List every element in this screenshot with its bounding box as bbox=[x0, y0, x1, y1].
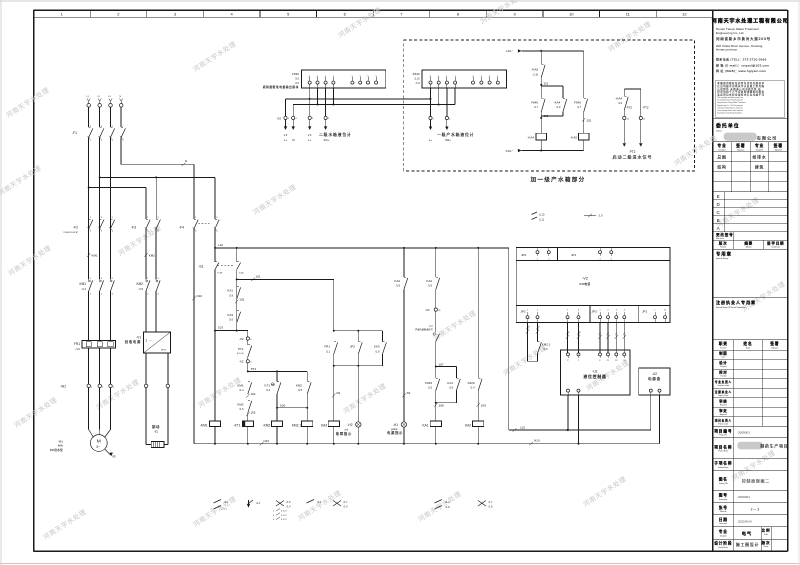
svg-text:M: M bbox=[97, 438, 101, 444]
svg-text:故障指示: 故障指示 bbox=[336, 431, 352, 436]
svg-text:KA2: KA2 bbox=[426, 279, 432, 283]
svg-text:审定: 审定 bbox=[719, 408, 727, 413]
svg-text:E: E bbox=[717, 194, 720, 199]
svg-text:/1.7: /1.7 bbox=[577, 106, 582, 109]
svg-text:/1.4: /1.4 bbox=[256, 502, 261, 505]
svg-text:F640: F640 bbox=[574, 100, 581, 104]
svg-text:Revised: Revised bbox=[720, 247, 726, 249]
svg-text:-U2: -U2 bbox=[652, 372, 657, 376]
svg-text:JP3: JP3 bbox=[592, 309, 598, 313]
svg-text:/1.1: /1.1 bbox=[326, 350, 331, 353]
svg-text:-F3: -F3 bbox=[131, 225, 136, 229]
svg-text:/1.9: /1.9 bbox=[599, 215, 604, 218]
svg-text:-X2: -X2 bbox=[425, 308, 430, 312]
svg-text:(0.5~8): (0.5~8) bbox=[237, 353, 244, 355]
svg-text:F-48: F-48 bbox=[218, 272, 223, 274]
svg-text:/1.9: /1.9 bbox=[229, 294, 234, 297]
svg-text:KM2.1: KM2.1 bbox=[292, 424, 301, 428]
svg-text:2009001: 2009001 bbox=[738, 431, 750, 435]
svg-text:-KA4: -KA4 bbox=[527, 136, 534, 140]
svg-text:专业负责人: 专业负责人 bbox=[715, 380, 732, 384]
svg-text:105: 105 bbox=[250, 411, 255, 415]
svg-text:/1.6: /1.6 bbox=[76, 347, 81, 351]
svg-text:KA1: KA1 bbox=[447, 381, 453, 385]
svg-text:/1.11: /1.11 bbox=[539, 218, 545, 221]
svg-text:N10: N10 bbox=[264, 439, 270, 443]
svg-text:2: 2 bbox=[548, 258, 549, 260]
svg-text:JP2: JP2 bbox=[350, 345, 356, 349]
svg-text:专业: 专业 bbox=[719, 529, 728, 534]
svg-text:/1.9: /1.9 bbox=[416, 82, 421, 85]
svg-text:二级水箱液位计: 二级水箱液位计 bbox=[319, 132, 352, 137]
svg-text:FR1: FR1 bbox=[324, 345, 330, 349]
svg-text:-KT1: -KT1 bbox=[234, 424, 241, 428]
svg-text:Designed: Designed bbox=[720, 366, 727, 368]
svg-text:N: N bbox=[185, 159, 187, 163]
svg-text:制药生产项目: 制药生产项目 bbox=[760, 444, 788, 449]
svg-text:签字日期: 签字日期 bbox=[767, 240, 784, 245]
svg-text:更改签号: 更改签号 bbox=[715, 232, 733, 237]
svg-text:PT1: PT1 bbox=[238, 347, 244, 351]
svg-text:注册执业人专用章: 注册执业人专用章 bbox=[716, 299, 756, 305]
svg-text:102: 102 bbox=[239, 298, 244, 302]
svg-text:/1.8: /1.8 bbox=[375, 350, 380, 353]
svg-text:2 /1.1: 2 /1.1 bbox=[222, 508, 228, 510]
svg-text:图号: 图号 bbox=[719, 493, 728, 498]
svg-text:/1.5: /1.5 bbox=[428, 386, 433, 389]
svg-text:PT2: PT2 bbox=[627, 106, 633, 110]
svg-text:-H2: -H2 bbox=[347, 423, 352, 427]
svg-text:审核: 审核 bbox=[719, 398, 727, 403]
svg-text:/1.8: /1.8 bbox=[449, 386, 454, 389]
svg-text:/1.4: /1.4 bbox=[470, 386, 475, 389]
svg-text:Design Phase: Design Phase bbox=[718, 547, 728, 549]
svg-text:PE: PE bbox=[113, 456, 117, 459]
svg-text:PT2: PT2 bbox=[643, 106, 649, 110]
svg-text:X10 /: X10 / bbox=[505, 149, 512, 153]
svg-text:回收电源: 回收电源 bbox=[125, 339, 141, 344]
svg-text:电气: 电气 bbox=[742, 530, 752, 537]
svg-text:-E1: -E1 bbox=[154, 429, 159, 433]
svg-text:/1.5: /1.5 bbox=[139, 287, 144, 291]
svg-text:4 /1.2: 4 /1.2 bbox=[281, 515, 287, 517]
svg-text:KM2: KM2 bbox=[136, 282, 143, 286]
svg-text:Reviewed: Reviewed bbox=[720, 404, 727, 406]
svg-text:KM1: KM1 bbox=[237, 384, 244, 388]
svg-text:/1.9: /1.9 bbox=[295, 82, 300, 85]
svg-text:2009001: 2009001 bbox=[738, 495, 750, 499]
svg-text:/1.10: /1.10 bbox=[533, 73, 539, 76]
svg-text:签署: 签署 bbox=[773, 143, 783, 148]
svg-text:有限公司: 有限公司 bbox=[757, 135, 778, 142]
svg-text:电源盒: 电源盒 bbox=[648, 376, 661, 381]
svg-text:制图: 制图 bbox=[719, 351, 727, 356]
svg-text:加一级产水箱部分: 加一级产水箱部分 bbox=[531, 176, 586, 184]
svg-text:SF75: SF75 bbox=[161, 350, 167, 352]
svg-text:F640: F640 bbox=[531, 100, 538, 104]
svg-text:IN1+: IN1+ bbox=[324, 138, 330, 142]
svg-text:/1.4: /1.4 bbox=[224, 501, 229, 504]
svg-text:Mark Issue: Mark Issue bbox=[716, 238, 724, 240]
svg-text:电源指示: 电源指示 bbox=[387, 430, 403, 435]
svg-text:项目编号: 项目编号 bbox=[713, 428, 732, 433]
svg-text:网 址 (WEB)：www.hgtyscl.com: 网 址 (WEB)：www.hgtyscl.com bbox=[716, 68, 766, 73]
svg-text:-M1: -M1 bbox=[58, 440, 63, 444]
svg-text:2 — 3: 2 — 3 bbox=[751, 507, 760, 511]
svg-text:/1.5: /1.5 bbox=[239, 408, 244, 411]
svg-text:8: 8 bbox=[578, 310, 579, 312]
svg-text:姓名: 姓名 bbox=[742, 341, 752, 346]
svg-text:-U1: -U1 bbox=[592, 370, 598, 374]
svg-text:B: B bbox=[717, 218, 720, 223]
svg-text:-H1: -H1 bbox=[393, 423, 398, 427]
svg-text:L10 /: L10 / bbox=[506, 49, 513, 53]
svg-text:F629: F629 bbox=[468, 381, 475, 385]
svg-text:7: 7 bbox=[567, 310, 568, 312]
svg-text:日期: 日期 bbox=[719, 517, 728, 522]
svg-text:IN2+: IN2+ bbox=[445, 138, 451, 142]
svg-text:RO供水泵: RO供水泵 bbox=[50, 448, 63, 452]
svg-text:0-48: 0-48 bbox=[239, 272, 244, 274]
svg-text:KM2: KM2 bbox=[296, 384, 303, 388]
svg-text:KM2: KM2 bbox=[149, 254, 156, 258]
svg-text:106: 106 bbox=[280, 403, 285, 407]
svg-text:子项名称: 子项名称 bbox=[714, 461, 732, 466]
svg-text:C2: C2 bbox=[615, 360, 617, 362]
svg-text:KA3: KA3 bbox=[321, 424, 327, 428]
svg-text:项目负责人: 项目负责人 bbox=[715, 418, 732, 422]
svg-text:版次: 版次 bbox=[719, 240, 728, 245]
svg-text:109: 109 bbox=[481, 403, 486, 407]
svg-text:L+: L+ bbox=[284, 138, 287, 142]
svg-text:/1.10: /1.10 bbox=[539, 214, 545, 217]
svg-text:L: L bbox=[654, 310, 655, 312]
svg-text:12: 12 bbox=[682, 11, 687, 16]
svg-text:签署: 签署 bbox=[735, 143, 745, 148]
svg-text:Discipline: Discipline bbox=[720, 535, 727, 537]
svg-text:F639: F639 bbox=[292, 72, 299, 76]
svg-text:Scale: Scale bbox=[764, 534, 768, 536]
svg-text:-X2: -X2 bbox=[276, 117, 281, 121]
svg-text:/1.6: /1.6 bbox=[295, 78, 300, 81]
svg-text:1: 1 bbox=[599, 258, 600, 260]
svg-text:/1.6: /1.6 bbox=[229, 319, 234, 322]
svg-text:4: 4 bbox=[624, 310, 625, 312]
svg-text:Engineering Co.,Ltd.: Engineering Co.,Ltd. bbox=[716, 31, 744, 35]
svg-text:KM1: KM1 bbox=[79, 282, 86, 286]
svg-text:~: ~ bbox=[150, 339, 152, 343]
svg-text:-KM2: -KM2 bbox=[263, 424, 271, 428]
svg-text:PT1: PT1 bbox=[251, 367, 257, 371]
svg-text:-F640: -F640 bbox=[412, 72, 420, 76]
svg-text:-W1: -W1 bbox=[60, 384, 66, 388]
svg-text:JP2: JP2 bbox=[521, 309, 527, 313]
svg-text:Client: Client bbox=[716, 130, 722, 133]
svg-text:一级产水箱液位计: 一级产水箱液位计 bbox=[437, 132, 474, 137]
svg-text:液位控制器: 液位控制器 bbox=[583, 374, 606, 379]
svg-text:KA1: KA1 bbox=[227, 289, 233, 293]
svg-text:-S1: -S1 bbox=[198, 265, 203, 269]
svg-text:/1.10: /1.10 bbox=[414, 78, 420, 81]
svg-text:河南省新乡市黄河大道200号: 河南省新乡市黄河大道200号 bbox=[716, 36, 771, 41]
svg-text:/1.5: /1.5 bbox=[287, 501, 292, 504]
svg-text:/1.8: /1.8 bbox=[489, 506, 494, 509]
svg-text:/1.4: /1.4 bbox=[287, 506, 292, 509]
svg-text:设计阶段: 设计阶段 bbox=[714, 540, 732, 545]
svg-text:1: 1 bbox=[537, 258, 538, 260]
svg-text:Henan province: Henan province bbox=[716, 48, 737, 52]
svg-text:JP1: JP1 bbox=[642, 309, 648, 313]
svg-text:-KA5: -KA5 bbox=[570, 136, 577, 140]
svg-text:联系电话 (TEL)：373 3720 0666: 联系电话 (TEL)：373 3720 0666 bbox=[716, 57, 767, 62]
svg-text:Signature: Signature bbox=[737, 148, 744, 151]
svg-text:C0: C0 bbox=[623, 360, 625, 362]
svg-text:2 /1.2: 2 /1.2 bbox=[281, 511, 287, 513]
svg-text:控制原理图二: 控制原理图二 bbox=[742, 479, 770, 484]
svg-text:2022/9/14: 2022/9/14 bbox=[738, 519, 752, 523]
svg-text:-KA4: -KA4 bbox=[554, 100, 561, 104]
svg-text:JP2: JP2 bbox=[521, 253, 527, 257]
svg-text:/1.4: /1.4 bbox=[344, 506, 349, 509]
svg-text:F629: F629 bbox=[425, 381, 432, 385]
svg-text:Special Stamp: Special Stamp bbox=[716, 257, 728, 260]
svg-text:/1.4: /1.4 bbox=[266, 389, 271, 392]
svg-text:比例: 比例 bbox=[762, 528, 771, 533]
svg-text:施工图设计: 施工图设计 bbox=[736, 542, 759, 547]
svg-text:专用章: 专用章 bbox=[716, 250, 732, 257]
svg-text:L10: L10 bbox=[520, 426, 525, 430]
svg-text:2: 2 bbox=[611, 258, 612, 260]
svg-text:-KM1: -KM1 bbox=[200, 424, 208, 428]
svg-text:RO电源: RO电源 bbox=[580, 282, 591, 286]
svg-text:R1: R1 bbox=[407, 391, 411, 395]
svg-text:设计: 设计 bbox=[719, 360, 727, 365]
svg-text:KT1: KT1 bbox=[264, 384, 270, 388]
svg-text:KM2.1: KM2.1 bbox=[542, 343, 551, 347]
svg-text:/1.8: /1.8 bbox=[446, 506, 451, 509]
svg-text:-KA5: -KA5 bbox=[531, 68, 538, 72]
svg-text:L10: L10 bbox=[218, 243, 223, 247]
svg-text:张号: 张号 bbox=[719, 505, 728, 510]
svg-text:2: 2 bbox=[537, 310, 538, 312]
svg-text:结构: 结构 bbox=[717, 164, 726, 169]
svg-text:KA3: KA3 bbox=[374, 345, 380, 349]
svg-text:Signature: Signature bbox=[775, 148, 782, 151]
svg-text:项目名称: 项目名称 bbox=[713, 444, 732, 449]
svg-text:-V1: -V1 bbox=[136, 336, 141, 340]
svg-text:/1.9: /1.9 bbox=[556, 106, 561, 109]
svg-text:建筑: 建筑 bbox=[755, 164, 764, 169]
svg-text:PT2: PT2 bbox=[630, 150, 636, 154]
svg-text:/1.4: /1.4 bbox=[239, 389, 244, 392]
svg-text:101: 101 bbox=[256, 275, 261, 279]
svg-text:河南天宇水处理工程有限公司: 河南天宇水处理工程有限公司 bbox=[711, 18, 789, 25]
svg-text:202: 202 bbox=[544, 114, 549, 118]
svg-text:邮 箱 (E-mail)：xxtyscl@163.co: 邮 箱 (E-mail)：xxtyscl@163.com bbox=[716, 62, 769, 67]
svg-text:3: 3 bbox=[616, 310, 617, 312]
svg-text:/1.7: /1.7 bbox=[344, 501, 349, 504]
svg-text:2: 2 bbox=[607, 310, 608, 312]
svg-text:201: 201 bbox=[544, 81, 549, 85]
svg-text:/1.5: /1.5 bbox=[298, 389, 303, 392]
svg-text:R2: R2 bbox=[337, 391, 341, 395]
svg-text:107: 107 bbox=[439, 362, 444, 366]
svg-text:模拟量断续电量输出模块: 模拟量断续电量输出模块 bbox=[263, 85, 299, 89]
svg-text:1: 1 bbox=[527, 310, 528, 312]
svg-text:专业: 专业 bbox=[755, 143, 764, 148]
svg-text:KA1: KA1 bbox=[422, 424, 428, 428]
svg-text:104: 104 bbox=[250, 392, 255, 396]
svg-text:KA2: KA2 bbox=[394, 279, 400, 283]
svg-text:Checked: Checked bbox=[720, 376, 726, 378]
svg-text:202: 202 bbox=[587, 119, 592, 123]
svg-text:108: 108 bbox=[439, 403, 444, 407]
svg-text:/1.8: /1.8 bbox=[428, 284, 433, 287]
svg-text:/1.6: /1.6 bbox=[544, 348, 549, 351]
svg-text:/1.4: /1.4 bbox=[82, 287, 87, 291]
svg-text:L+: L+ bbox=[429, 138, 432, 142]
svg-text:摘要: 摘要 bbox=[744, 240, 753, 245]
svg-text:委托单位: 委托单位 bbox=[716, 122, 740, 129]
svg-text:FR1: FR1 bbox=[74, 342, 80, 346]
svg-text:专业: 专业 bbox=[717, 143, 726, 148]
svg-text:Special Stamp Of Person Regist: Special Stamp Of Person Registered bbox=[716, 306, 745, 309]
svg-text:C1: C1 bbox=[607, 360, 609, 362]
svg-text:总图: 总图 bbox=[717, 154, 726, 159]
svg-text:KM1: KM1 bbox=[92, 254, 99, 258]
svg-text:版次: 版次 bbox=[762, 540, 771, 545]
svg-text:注册执业人: 注册执业人 bbox=[715, 390, 732, 394]
svg-text:Name: Name bbox=[746, 347, 750, 349]
svg-text:/1.7: /1.7 bbox=[534, 106, 539, 109]
svg-text:给排水: 给排水 bbox=[753, 154, 767, 159]
svg-text:图名: 图名 bbox=[719, 477, 728, 482]
svg-text:103: 103 bbox=[218, 325, 223, 329]
svg-text:-KA4: -KA4 bbox=[615, 96, 622, 100]
svg-text:及其所包含的全部技术信息均属于河: 及其所包含的全部技术信息均属于河 bbox=[717, 92, 764, 96]
svg-text:/1.9: /1.9 bbox=[618, 102, 623, 105]
svg-text:N10: N10 bbox=[197, 294, 203, 298]
svg-text:4kW: 4kW bbox=[58, 444, 64, 448]
svg-text:/1.9: /1.9 bbox=[317, 501, 322, 504]
svg-text:/1.7: /1.7 bbox=[489, 501, 494, 504]
svg-text:校对: 校对 bbox=[719, 370, 727, 375]
svg-text:制动: 制动 bbox=[152, 424, 160, 429]
svg-text:-X2: -X2 bbox=[239, 337, 244, 341]
svg-text:/1.4: /1.4 bbox=[446, 501, 451, 504]
svg-text:N10: N10 bbox=[534, 439, 540, 443]
svg-text:/1.8: /1.8 bbox=[396, 284, 401, 287]
svg-text:3~: 3~ bbox=[96, 445, 100, 449]
svg-text:KA2: KA2 bbox=[465, 424, 471, 428]
svg-text:L+: L+ bbox=[308, 138, 311, 142]
svg-text:-V2: -V2 bbox=[582, 277, 588, 281]
svg-text:1: 1 bbox=[599, 310, 600, 312]
svg-text:-F2: -F2 bbox=[73, 225, 78, 229]
svg-text:6 /1.2: 6 /1.2 bbox=[281, 519, 287, 521]
svg-text:VYB-63 D16 3P: VYB-63 D16 3P bbox=[63, 232, 78, 234]
svg-text:10: 10 bbox=[569, 11, 574, 16]
svg-text:职责: 职责 bbox=[719, 341, 728, 346]
svg-text:JP1: JP1 bbox=[571, 253, 577, 257]
svg-text:签署: 签署 bbox=[769, 341, 779, 346]
svg-text:KM2: KM2 bbox=[237, 402, 244, 406]
svg-text:-F4: -F4 bbox=[179, 225, 184, 229]
svg-text:启动二级进水信号: 启动二级进水信号 bbox=[613, 154, 653, 160]
svg-text:-F1: -F1 bbox=[72, 131, 77, 135]
svg-text:-X2: -X2 bbox=[239, 360, 244, 364]
svg-text:KA3: KA3 bbox=[227, 313, 233, 317]
